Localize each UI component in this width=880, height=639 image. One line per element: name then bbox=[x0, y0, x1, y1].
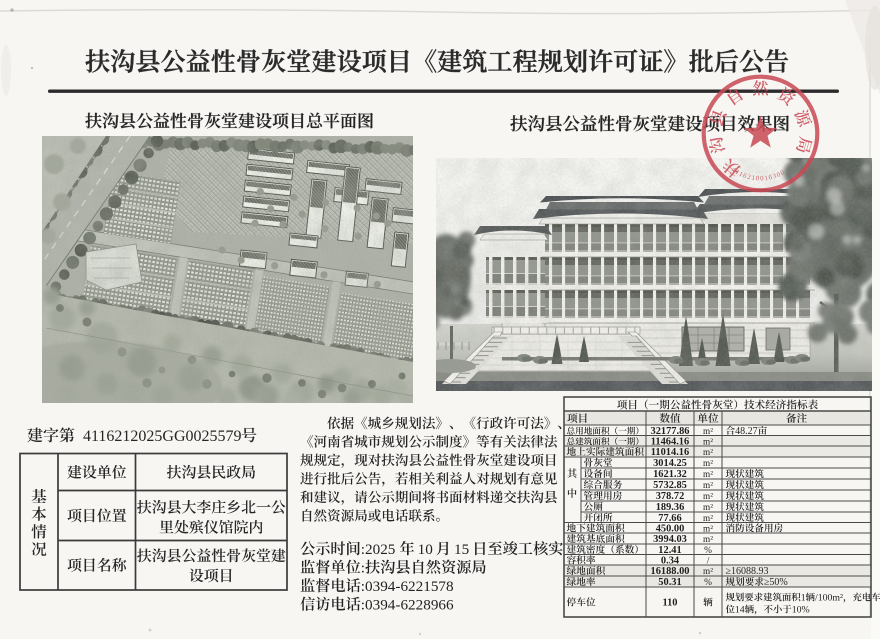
svg-text:32177.86: 32177.86 bbox=[651, 426, 690, 437]
svg-text:1621.32: 1621.32 bbox=[653, 469, 687, 480]
svg-text:/100m²: /100m² bbox=[815, 593, 843, 604]
svg-text:11014.16: 11014.16 bbox=[651, 447, 689, 458]
svg-text:m²: m² bbox=[703, 491, 713, 501]
svg-text:m²: m² bbox=[703, 566, 713, 576]
svg-text:m²: m² bbox=[703, 534, 713, 544]
svg-text:378.72: 378.72 bbox=[656, 491, 685, 502]
svg-text:m²: m² bbox=[703, 513, 713, 523]
svg-text:10%: 10% bbox=[792, 605, 810, 616]
svg-text:450.00: 450.00 bbox=[656, 523, 685, 534]
svg-text:77.66: 77.66 bbox=[658, 513, 681, 524]
svg-text:0.34: 0.34 bbox=[661, 555, 679, 566]
svg-text:≥50%: ≥50% bbox=[764, 577, 788, 588]
svg-text:10: 10 bbox=[418, 541, 434, 558]
svg-text:%: % bbox=[704, 578, 712, 588]
svg-text:%: % bbox=[704, 546, 712, 556]
svg-text:50.31: 50.31 bbox=[658, 577, 681, 588]
svg-text:11464.16: 11464.16 bbox=[651, 436, 689, 447]
svg-text:16188.00: 16188.00 bbox=[651, 566, 690, 577]
svg-text:15: 15 bbox=[454, 541, 469, 558]
svg-text:m²: m² bbox=[703, 426, 713, 436]
svg-text:12.41: 12.41 bbox=[658, 545, 681, 556]
svg-text:48.27: 48.27 bbox=[735, 426, 758, 437]
svg-text:/: / bbox=[707, 556, 710, 566]
svg-text:110: 110 bbox=[662, 598, 677, 609]
svg-text:m²: m² bbox=[703, 447, 713, 457]
svg-text:1: 1 bbox=[801, 593, 806, 604]
svg-text:189.36: 189.36 bbox=[656, 502, 685, 513]
svg-text:16088.93: 16088.93 bbox=[731, 566, 769, 577]
svg-text:5732.85: 5732.85 bbox=[653, 480, 687, 491]
svg-text:m²: m² bbox=[703, 436, 713, 446]
svg-text::: : bbox=[361, 560, 365, 577]
svg-text:m²: m² bbox=[703, 523, 713, 533]
svg-text:m²: m² bbox=[703, 502, 713, 512]
svg-text:3014.25: 3014.25 bbox=[653, 458, 687, 469]
svg-text:m²: m² bbox=[703, 480, 713, 490]
svg-text:3994.03: 3994.03 bbox=[653, 534, 687, 545]
svg-text:4116212025GG0025579: 4116212025GG0025579 bbox=[83, 428, 242, 445]
svg-text::0394-6228966: :0394-6228966 bbox=[361, 597, 454, 614]
svg-text:m²: m² bbox=[703, 469, 713, 479]
svg-text::2025: :2025 bbox=[361, 541, 396, 558]
svg-text::0394-6221578: :0394-6221578 bbox=[361, 578, 454, 595]
svg-text:m²: m² bbox=[703, 458, 713, 468]
svg-text:14: 14 bbox=[735, 605, 745, 616]
